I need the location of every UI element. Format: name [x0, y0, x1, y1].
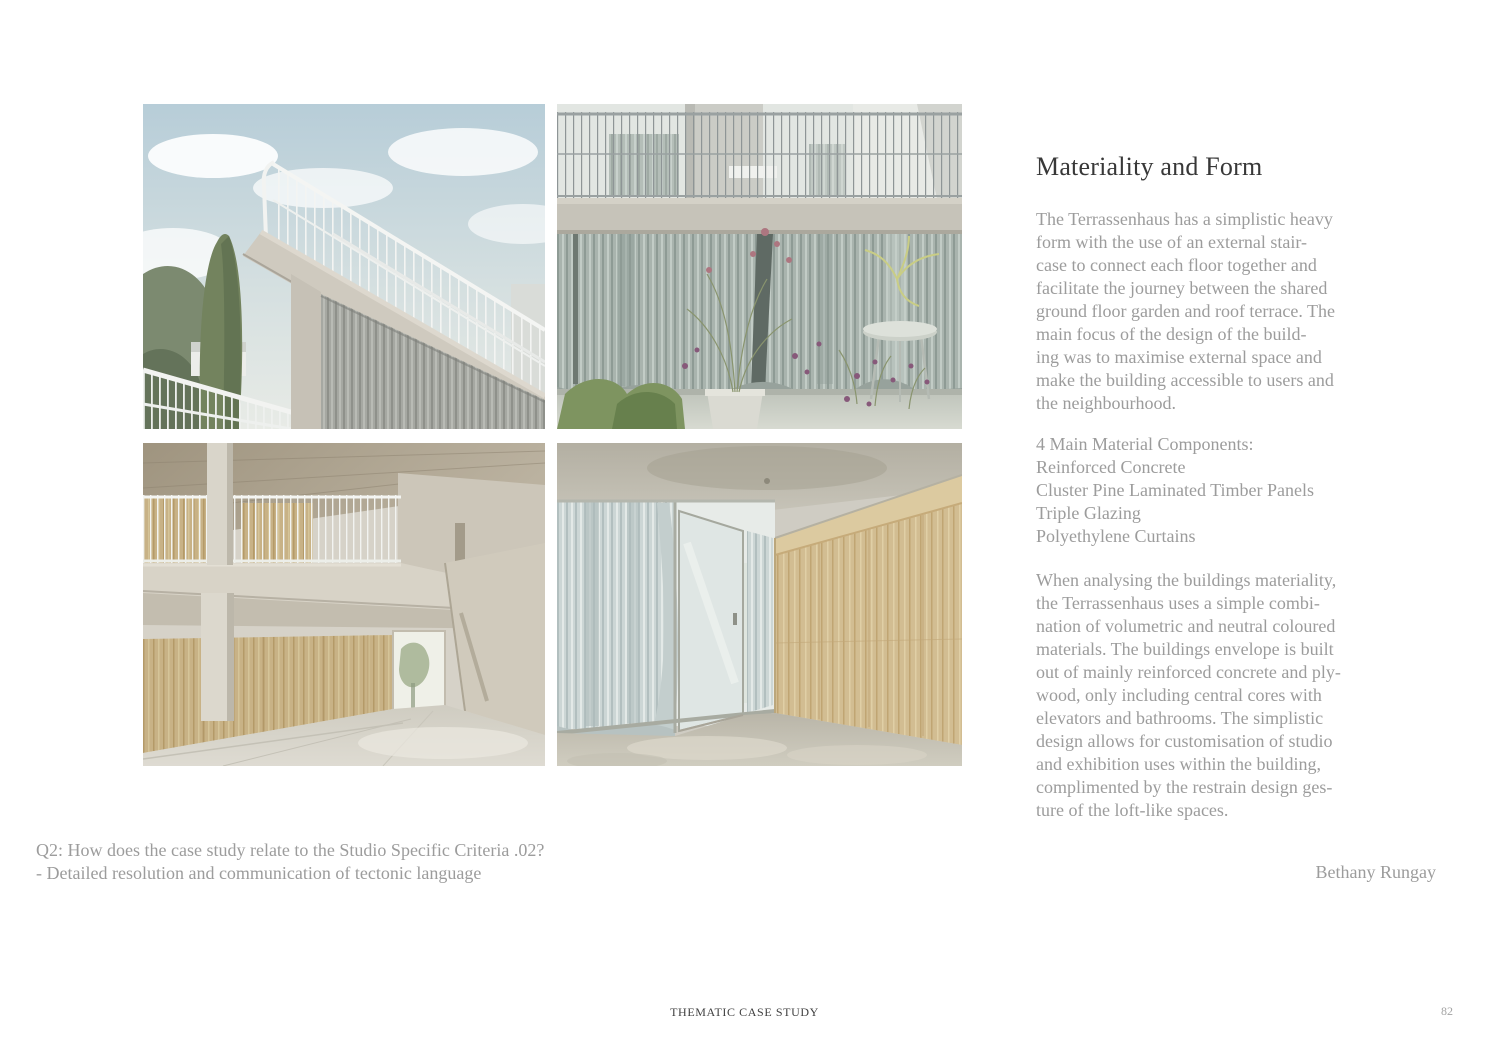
section-title: Materiality and Form — [1036, 152, 1436, 182]
photo-exterior-staircase — [143, 104, 545, 429]
interior-mezzanine-illustration — [143, 443, 545, 766]
question-text: Q2: How does the case study relate to th… — [36, 839, 736, 885]
exterior-staircase-illustration — [143, 104, 545, 429]
intro-paragraph: The Terrassenhaus has a simplistic heavy… — [1036, 208, 1436, 415]
analysis-paragraph: When analysing the buildings materiality… — [1036, 569, 1436, 822]
author-name: Bethany Rungay — [1036, 862, 1436, 883]
photo-interior-mezzanine — [143, 443, 545, 766]
photo-interior-plywood-room — [557, 443, 962, 766]
article-column: Materiality and Form The Terrassenhaus h… — [1036, 152, 1436, 822]
page-number: 82 — [1441, 1004, 1453, 1019]
case-study-page: { "colors": { "page_background": "#fffff… — [0, 0, 1489, 1053]
materials-list: 4 Main Material Components: Reinforced C… — [1036, 433, 1436, 548]
photo-terrace-curtains — [557, 104, 962, 429]
footer-title: THEMATIC CASE STUDY — [0, 1005, 1489, 1020]
interior-plywood-room-illustration — [557, 443, 962, 766]
terrace-curtains-illustration — [557, 104, 962, 429]
